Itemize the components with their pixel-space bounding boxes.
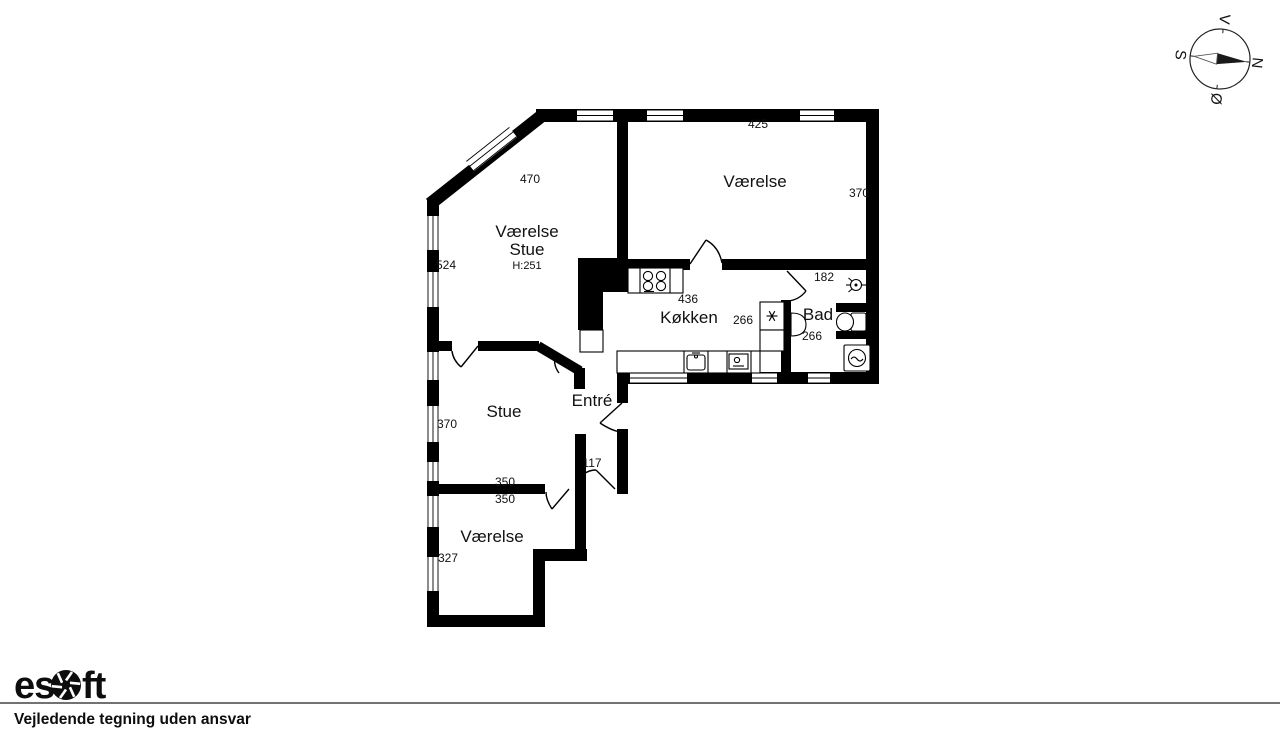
window [427,272,439,307]
door-bad [787,271,806,301]
window [647,110,683,122]
window [752,373,777,384]
room-label-entre: Entré [572,391,613,410]
wall-ne-bottom-b [722,259,866,270]
wall-right [866,109,879,384]
wall-bad-niche-bottom [836,331,866,339]
compass-east-label: Ø [1207,92,1225,106]
disclaimer-text: Vejledende tegning uden ansvar [14,711,251,728]
wall-sroom-right [575,434,586,561]
floorplan-canvas: 470 Værelse Stue H:251 524 425 Værelse 3… [0,0,1280,734]
room-label-bad: Bad [803,305,833,324]
compass-north-label: N [1248,57,1266,70]
dim-266-bad: 266 [802,329,822,343]
room-label-vaerelse-stue-1: Værelse [495,222,558,241]
wall-entre-stub [574,368,585,389]
compass-needle-north [1216,53,1247,67]
wall-upper-divider [617,109,628,258]
wall-bad-niche-top [836,303,866,312]
interior-walls [433,109,866,494]
lamp-icon [846,278,866,292]
window [427,496,439,527]
dim-350-above: 350 [495,475,515,489]
dim-266-kitchen: 266 [733,313,753,327]
wall-stue-top-a [433,341,452,351]
room-label-stue: Stue [487,402,522,421]
compass-needle-south [1194,51,1218,64]
toilet-icon [837,313,867,331]
dim-436: 436 [678,292,698,306]
window [630,373,687,384]
dim-370-right: 370 [849,186,869,200]
dim-425: 425 [748,117,768,131]
wall-entre-right-a [617,372,628,403]
washing-machine-icon [844,345,870,371]
dim-470: 470 [520,172,540,186]
compass-west-label: V [1215,13,1233,25]
dim-524: 524 [436,258,456,272]
fridge-icon [760,302,784,351]
window [808,373,830,384]
wall-350 [433,484,545,494]
dim-327: 327 [438,551,458,565]
window [427,216,439,250]
room-label-koekken: Køkken [660,308,718,327]
cabinet [760,330,784,351]
logo-text-ft: ft [82,665,107,707]
dim-350-below: 350 [495,492,515,506]
room-label-vaerelse-s: Værelse [460,527,523,546]
wall-stue-top-b [478,341,539,351]
door-kitchen [690,240,722,264]
door-entrance-117 [584,470,615,489]
footer: es ft Vejledende tegning uden ansvar [0,665,1280,728]
room-label-vaerelse-ne: Værelse [723,172,786,191]
door-stue-nw [452,346,478,367]
shaft-block [578,258,628,330]
compass-south-label: S [1171,49,1189,61]
window [427,352,439,380]
dim-h251: H:251 [512,260,541,272]
aperture-icon [51,670,81,700]
cabinet-shaft [580,330,603,352]
wall-sw-bottom [427,615,545,627]
dim-370-left: 370 [437,417,457,431]
window [800,110,834,122]
door-vaerelse-s [546,489,569,509]
room-label-vaerelse-stue-2: Stue [510,240,545,259]
window [577,110,613,122]
compass-icon: N S Ø V [1167,9,1270,109]
stove-icon [628,268,683,293]
wall-entre-right-b [617,429,628,494]
dim-117: 117 [582,456,601,470]
dim-182: 182 [814,270,834,284]
window [427,462,439,481]
logo-text-es: es [14,665,54,707]
